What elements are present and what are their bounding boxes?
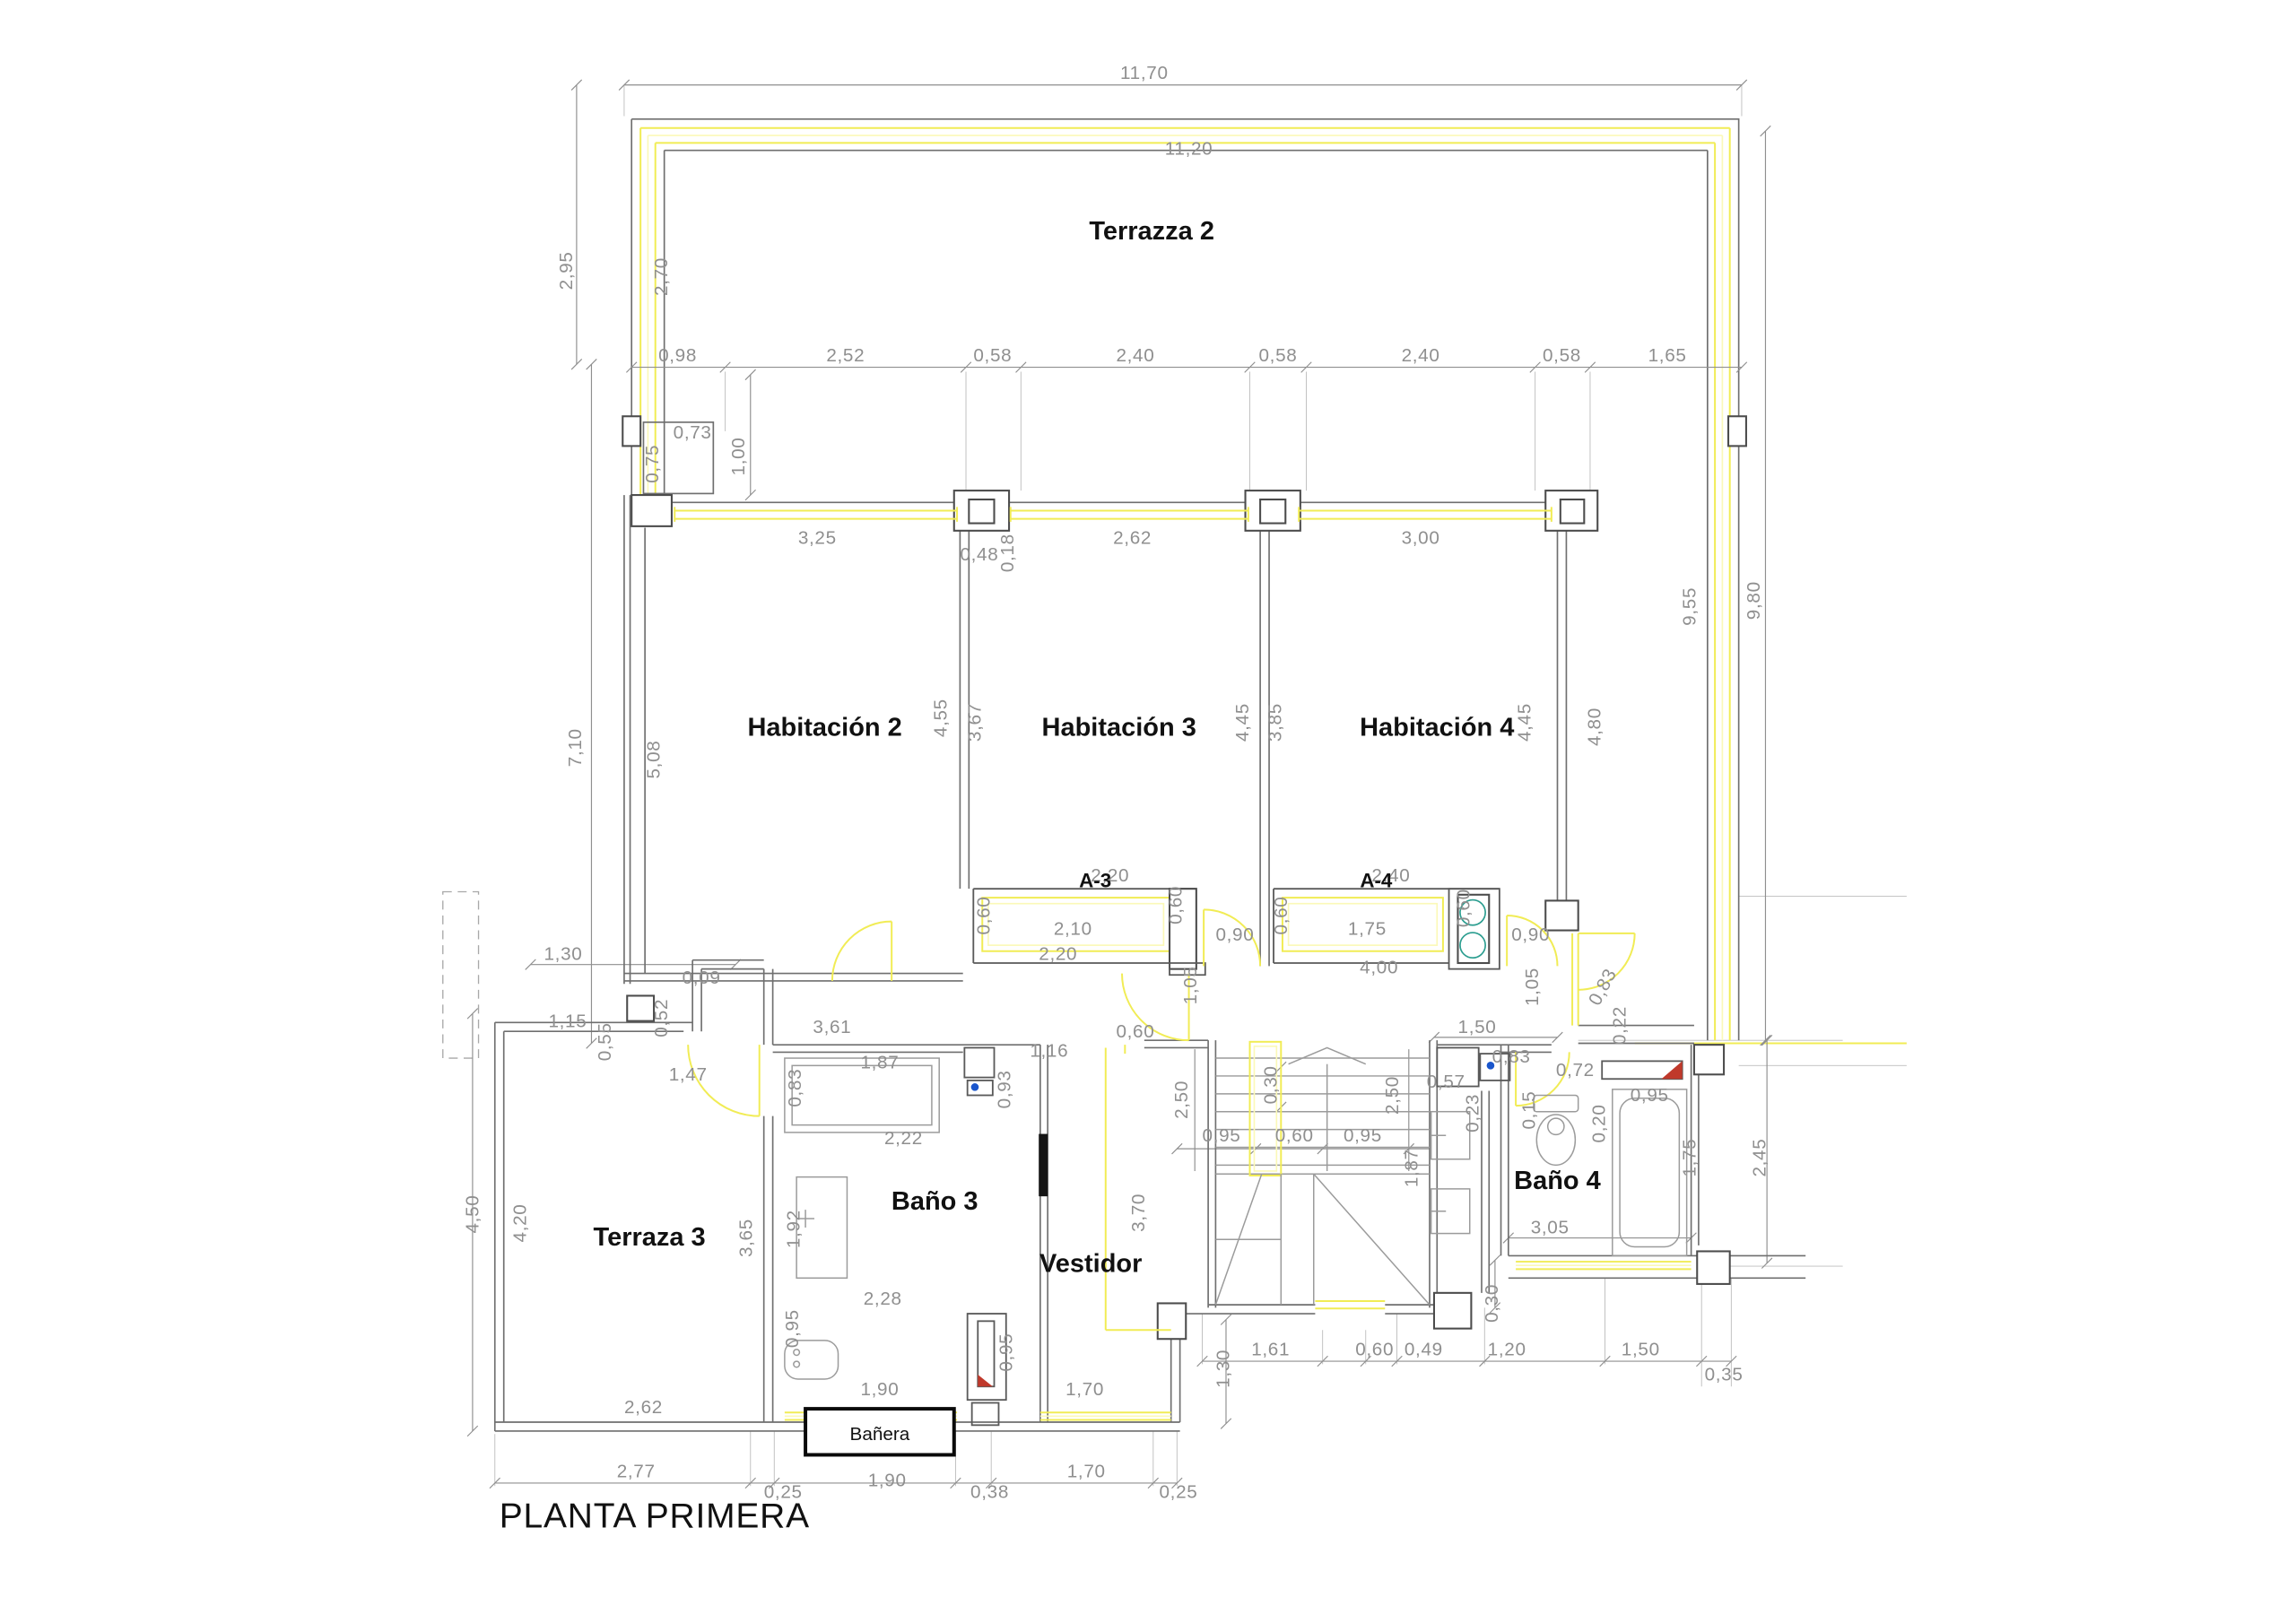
dimension-label: 1,90 (868, 1470, 907, 1490)
dimension-label: 1,90 (860, 1379, 899, 1400)
drawing-title: PLANTA PRIMERA (500, 1497, 810, 1536)
faucet-icon (971, 1083, 979, 1091)
room-label: A-3 (1079, 870, 1111, 892)
dimension-label: 2,50 (1171, 1081, 1192, 1119)
dimension-label: 4,45 (1232, 703, 1253, 742)
dimension-label: 2,40 (1116, 345, 1154, 366)
dimension-label: 3,67 (965, 703, 986, 742)
toilet-cistern (1534, 1095, 1578, 1111)
dimension-label: 1,75 (1348, 919, 1387, 940)
dimension-label: 0,83 (1585, 965, 1621, 1009)
dimension-label: 9,80 (1744, 581, 1764, 620)
dimension-label: 3,70 (1128, 1193, 1149, 1232)
dimension-label: 2,40 (1402, 345, 1440, 366)
dimension-label: 11,70 (1120, 63, 1169, 83)
dimension-label: 0,30 (1260, 1065, 1281, 1104)
dimension-label: 9,55 (1680, 587, 1700, 626)
dimension-label: 0,35 (1705, 1365, 1744, 1385)
shower-marker-icon (978, 1375, 993, 1386)
dimension-label: 1,16 (1030, 1040, 1068, 1061)
dimension-label: 2,70 (651, 257, 672, 296)
wall-section-fill (1039, 1134, 1048, 1197)
dimension-label: 1,30 (544, 944, 583, 965)
dimension-label: 0,95 (1344, 1125, 1382, 1146)
dimension-label: 0,23 (1463, 1094, 1483, 1133)
washbasin-cabinet (964, 1047, 994, 1077)
dimension-label: 2,50 (1382, 1076, 1403, 1115)
dimension-label: 0,58 (1259, 345, 1298, 366)
dimension-label: 0,25 (1159, 1482, 1197, 1503)
dimension-label: 0,20 (1589, 1104, 1610, 1142)
dimension-label: 3,85 (1265, 703, 1285, 742)
dimension-label: 3,00 (1402, 528, 1440, 549)
dimension-label: 2,10 (1054, 919, 1092, 940)
terrace-pillar-right (1728, 416, 1746, 446)
dimension-label: 0,72 (1556, 1060, 1595, 1081)
dimension-label: 0,15 (1519, 1091, 1540, 1130)
dimension-label: 3,05 (1531, 1218, 1570, 1238)
dimension-label: 3,61 (813, 1017, 851, 1037)
room-label: Baño 3 (891, 1187, 978, 1216)
dimension-label: 0,60 (1271, 897, 1291, 935)
dimension-label: 2,77 (617, 1461, 656, 1481)
room-label: Vestidor (1039, 1250, 1142, 1279)
dimension-label: 2,95 (556, 251, 577, 290)
dimension-label: 7,10 (565, 728, 586, 767)
dimension-label: 4,80 (1585, 707, 1605, 746)
dimension-label: 1,20 (1488, 1339, 1526, 1359)
dimension-label: 0,95 (996, 1333, 1016, 1372)
dimension-label: 0,75 (642, 445, 663, 483)
dimension-label: 1,50 (1622, 1339, 1660, 1359)
dimension-label: 1,50 (1458, 1017, 1497, 1037)
dimension-label: 4,45 (1515, 703, 1535, 742)
dimension-label: 0,58 (973, 345, 1012, 366)
dimension-label: 0,57 (1427, 1072, 1465, 1092)
dimension-label: 0,58 (1543, 345, 1581, 366)
dimension-label: 0,22 (1610, 1006, 1631, 1045)
dimension-label: 0,38 (970, 1482, 1009, 1503)
dimension-label: 3,25 (798, 528, 837, 549)
dimension-label: 0,09 (683, 968, 721, 988)
dimension-label: 1,05 (1180, 966, 1201, 1004)
dimension-label: 1,70 (1067, 1461, 1106, 1481)
dimension-label: 4,00 (1360, 958, 1398, 978)
dimension-label: 0,93 (995, 1070, 1015, 1108)
dimension-label: 4,20 (510, 1204, 531, 1243)
dimension-label: 0,90 (1215, 924, 1254, 945)
dimension-label: 1,87 (860, 1053, 899, 1073)
dimension-label: 0,60 (1454, 889, 1474, 927)
dimension-label: 0,49 (1405, 1339, 1443, 1359)
interior-walls (495, 422, 1805, 1431)
dimension-label: 0,95 (782, 1309, 803, 1348)
floor-plan-canvas: 11,7011,202,952,700,982,520,582,400,582,… (0, 0, 2296, 1623)
dimension-label: 1,30 (1213, 1350, 1233, 1388)
dimension-label: 0,18 (997, 534, 1018, 572)
dimension-label: 1,65 (1648, 345, 1687, 366)
room-label: Habitación 2 (747, 713, 901, 742)
dimension-label: 4,55 (930, 699, 951, 737)
dimension-label: 0,60 (1165, 886, 1186, 924)
room-label: Terraza 3 (594, 1223, 706, 1252)
room-label: Terrazza 2 (1089, 217, 1214, 246)
room-label: A-4 (1360, 870, 1393, 892)
dimension-label: 0,98 (658, 345, 697, 366)
dimension-labels-layer: 11,7011,202,952,700,982,520,582,400,582,… (463, 63, 1770, 1502)
dimension-label: 0,83 (785, 1069, 805, 1107)
dimension-label: 5,08 (644, 741, 665, 779)
dimension-label: 0,95 (1631, 1085, 1669, 1106)
dimension-label: 1,15 (548, 1011, 587, 1031)
toilet (1536, 1115, 1575, 1165)
dimension-label: 11,20 (1165, 139, 1213, 160)
dimension-label: 2,45 (1749, 1139, 1770, 1177)
banera-label: Bañera (850, 1424, 910, 1445)
dimension-label: 1,75 (1680, 1139, 1700, 1177)
dimension-label: 4,50 (463, 1195, 483, 1234)
dimension-label: 0,60 (1116, 1021, 1154, 1042)
dimension-label: 1,87 (1402, 1149, 1422, 1187)
dimension-label: 0,48 (960, 544, 998, 565)
dimension-label: 2,62 (1113, 528, 1152, 549)
dimension-label: 2,20 (1039, 944, 1077, 965)
dimension-label: 2,62 (624, 1397, 663, 1418)
bathtub (1613, 1089, 1687, 1256)
dimension-label: 1,47 (669, 1064, 708, 1085)
dimension-label: 1,00 (728, 438, 749, 476)
dimension-label: 0,95 (1203, 1125, 1241, 1146)
room-labels-layer: Terrazza 2Habitación 2Habitación 3Habita… (594, 217, 1601, 1279)
dimension-label: 0,73 (674, 422, 712, 443)
dimension-label: 0,90 (1511, 924, 1550, 945)
dimension-label: 2,22 (884, 1128, 923, 1149)
room-label: Baño 4 (1514, 1167, 1601, 1195)
dimension-label: 0,55 (595, 1022, 615, 1061)
stair-direction-arrow-icon (1289, 1047, 1366, 1063)
dimension-label: 0,60 (974, 897, 995, 935)
washbasin (796, 1177, 847, 1279)
dimension-label: 0,52 (651, 999, 672, 1037)
dimension-label: 3,65 (735, 1219, 756, 1257)
dimension-label: 1,70 (1065, 1379, 1104, 1400)
dimension-label: 0,30 (1482, 1284, 1502, 1323)
dimension-label: 1,61 (1251, 1339, 1290, 1359)
door-arcs (688, 909, 1634, 1330)
dimension-label: 0,83 (1492, 1046, 1531, 1067)
dimension-label: 0,60 (1275, 1125, 1314, 1146)
dimension-label: 0,60 (1355, 1339, 1394, 1359)
dimension-label: 2,28 (864, 1289, 902, 1309)
room-label: Habitación 3 (1042, 713, 1196, 742)
dimension-label: 2,52 (826, 345, 865, 366)
dimension-label: 1,92 (783, 1210, 804, 1248)
room-label: Habitación 4 (1360, 713, 1514, 742)
dimension-label: 1,05 (1522, 968, 1543, 1006)
shelf-marker-icon (1661, 1061, 1682, 1079)
terrace-pillar-left (622, 416, 640, 446)
